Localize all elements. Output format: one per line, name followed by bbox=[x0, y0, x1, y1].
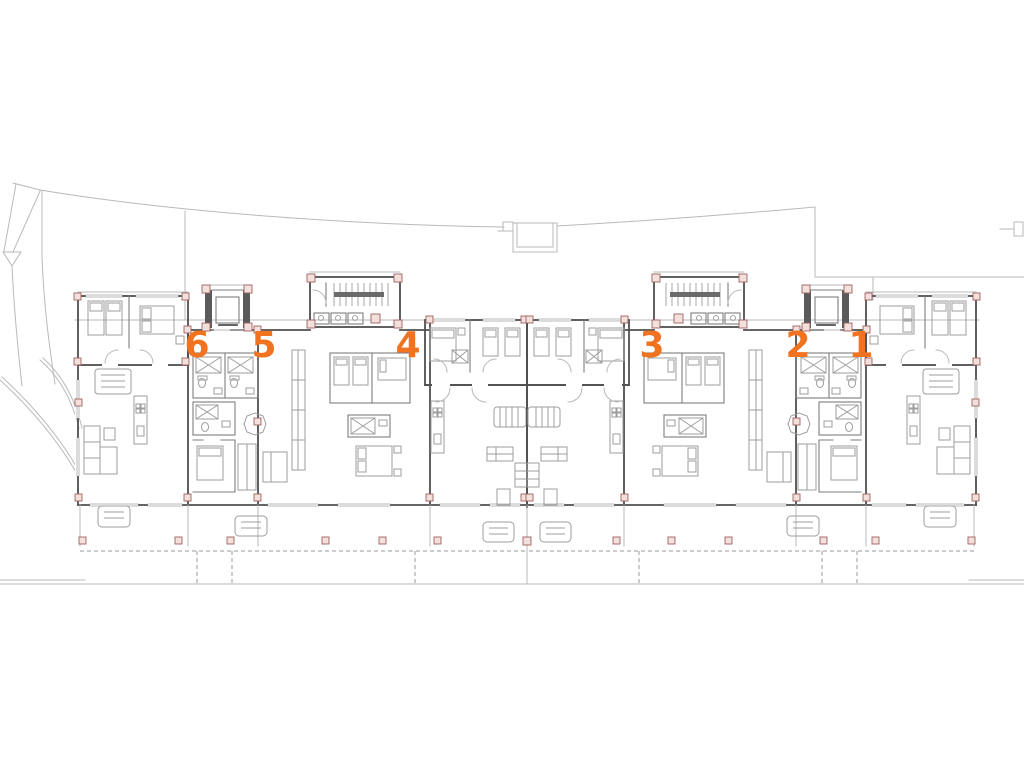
floor-plan-page: 6 5 4 3 2 1 bbox=[0, 0, 1024, 768]
unit-label-6[interactable]: 6 bbox=[184, 325, 209, 366]
unit-label-2[interactable]: 2 bbox=[785, 325, 810, 366]
unit-label-3[interactable]: 3 bbox=[639, 325, 664, 366]
boundary-notch bbox=[498, 222, 557, 252]
unit-label-4[interactable]: 4 bbox=[395, 325, 420, 366]
floor-plan-canvas: 6 5 4 3 2 1 bbox=[0, 0, 1024, 768]
unit-number-labels: 6 5 4 3 2 1 bbox=[184, 325, 873, 366]
center-elements bbox=[523, 537, 531, 545]
unit-label-5[interactable]: 5 bbox=[251, 325, 276, 366]
building-right-half bbox=[524, 272, 1024, 584]
unit-label-1[interactable]: 1 bbox=[848, 325, 873, 366]
